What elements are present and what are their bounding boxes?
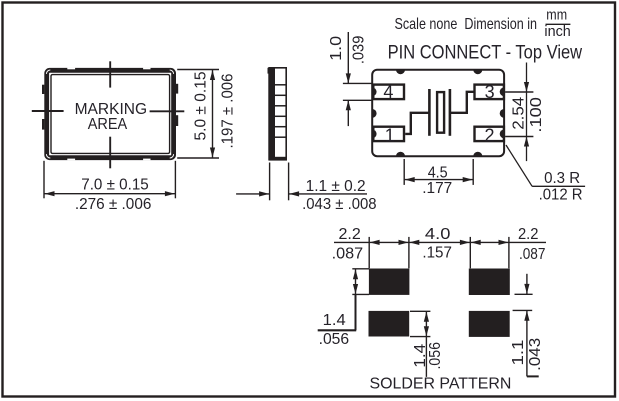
svg-text:1.0: 1.0 (328, 36, 345, 61)
svg-text:3: 3 (485, 82, 495, 102)
svg-text:4.0: 4.0 (425, 226, 451, 243)
svg-text:7.0 ± 0.15: 7.0 ± 0.15 (81, 177, 149, 194)
svg-text:.177: .177 (422, 180, 452, 197)
svg-text:1.1 ± 0.2: 1.1 ± 0.2 (306, 178, 366, 195)
svg-text:.276 ± .006: .276 ± .006 (75, 196, 152, 213)
svg-text:.100: .100 (528, 97, 545, 133)
svg-text:4: 4 (383, 82, 393, 102)
svg-text:2.2: 2.2 (518, 226, 539, 243)
svg-text:PIN CONNECT - Top View: PIN CONNECT - Top View (388, 43, 583, 64)
svg-text:mm: mm (546, 8, 567, 24)
svg-text:.197 ± .006: .197 ± .006 (219, 73, 236, 148)
svg-text:.087: .087 (519, 246, 546, 263)
svg-text:2.2: 2.2 (339, 226, 361, 243)
svg-text:0.3 R: 0.3 R (544, 170, 580, 187)
svg-text:1.4: 1.4 (323, 312, 346, 329)
svg-text:2: 2 (484, 125, 494, 145)
svg-text:.043: .043 (527, 338, 544, 371)
svg-text:.039: .039 (350, 36, 367, 65)
svg-text:.157: .157 (422, 245, 452, 262)
svg-text:.056: .056 (319, 331, 350, 348)
svg-text:SOLDER PATTERN: SOLDER PATTERN (369, 375, 511, 392)
svg-text:.012 R: .012 R (539, 187, 583, 204)
svg-text:Scale none Dimension in: Scale none Dimension in (395, 16, 538, 33)
svg-text:AREA: AREA (88, 116, 128, 133)
svg-text:2.54: 2.54 (510, 97, 527, 130)
svg-text:1: 1 (385, 125, 395, 145)
svg-text:1.1: 1.1 (510, 339, 527, 365)
svg-text:.056: .056 (427, 342, 444, 370)
svg-text:5.0 ± 0.15: 5.0 ± 0.15 (192, 71, 209, 140)
svg-text:inch: inch (544, 24, 570, 40)
svg-text:.043 ± .008: .043 ± .008 (302, 196, 377, 213)
svg-text:.087: .087 (332, 245, 364, 262)
